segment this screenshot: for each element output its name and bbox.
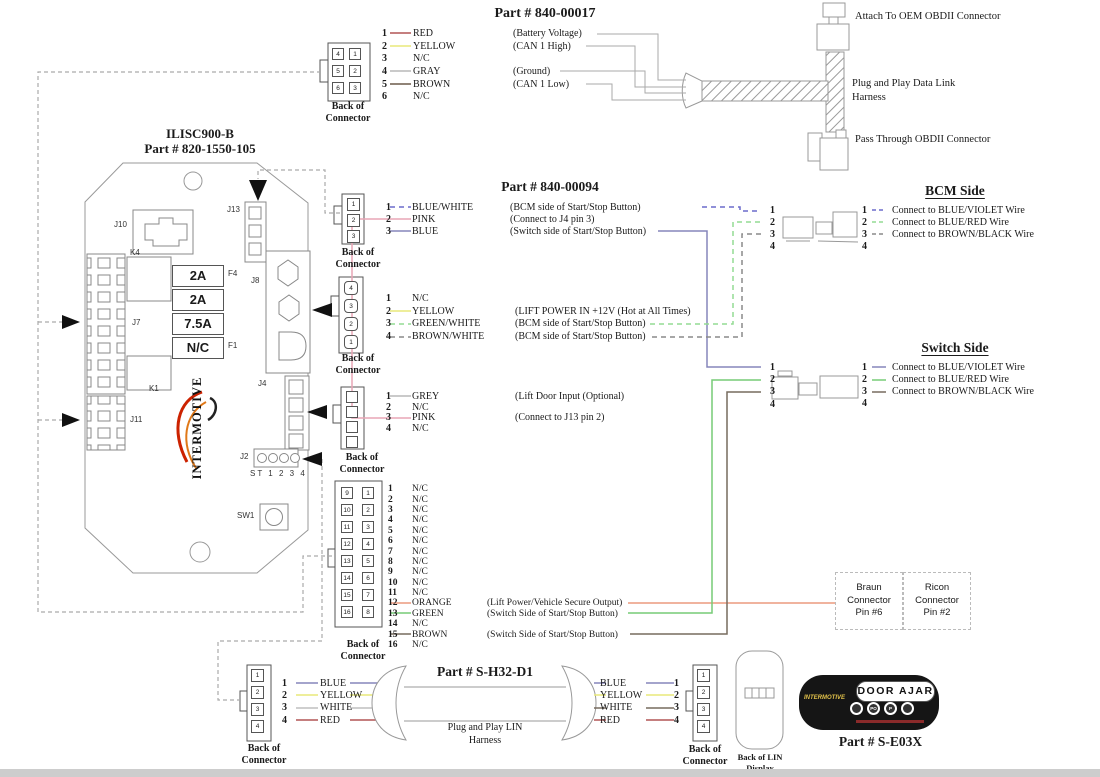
pin-label: Connect to BLUE/VIOLET Wire	[892, 362, 1025, 373]
lin-right-connector-cells: 1234	[697, 669, 710, 733]
pin-number: 3	[862, 229, 870, 240]
lin-left-pinlist: 1 BLUE 2 YELLOW 3 WHITE 4 RED	[282, 677, 362, 726]
pin-label: Connect to BLUE/VIOLET Wire	[892, 205, 1025, 216]
pin-number: 1	[674, 678, 686, 689]
ref-j11: J11	[130, 415, 142, 424]
pin-color: YELLOW	[412, 306, 515, 317]
pin-number: 4	[763, 241, 775, 253]
pin-row: 11 N/C	[388, 588, 622, 598]
pin-number: 1	[386, 391, 396, 402]
pin-color: RED	[413, 28, 513, 39]
pin-row: 2 N/C	[388, 494, 622, 504]
pin-number: 6	[382, 91, 392, 102]
pin-number: 5	[382, 79, 392, 90]
connector-840-00017-cells: 415263	[332, 48, 361, 94]
pin-number: 13	[388, 609, 402, 619]
pin-color: GREEN/WHITE	[412, 318, 515, 329]
ref-f1: F1	[228, 341, 237, 350]
pin-row: 2 YELLOW (LIFT POWER IN +12V (Hot at All…	[386, 305, 691, 318]
pin-cell	[346, 436, 358, 448]
module-title-line2: Part # 820-1550-105	[90, 141, 310, 156]
lin-harness-title: Part # S-H32-D1	[405, 664, 565, 680]
pin-color: BROWN	[413, 79, 513, 90]
pin-cell: 6	[332, 82, 344, 94]
pin-color: N/C	[412, 526, 487, 536]
arrow-j13	[249, 180, 267, 201]
pin-number: 1	[386, 293, 396, 304]
pin-row: 1 GREY (Lift Door Input (Optional)	[386, 391, 624, 402]
pin-number: 16	[388, 640, 402, 650]
pin-color: WHITE	[320, 702, 352, 713]
pin-cell: 3	[697, 703, 710, 716]
pin-color: N/C	[412, 423, 515, 434]
pin-cell: 4	[344, 281, 358, 295]
pin-number: 2	[674, 690, 686, 701]
pin-color: YELLOW	[320, 690, 362, 701]
pin-number: 4	[763, 398, 775, 410]
part-se03x-title: Part # S-E03X	[818, 734, 943, 750]
pin-number: 3	[674, 702, 686, 713]
pin-number: 7	[388, 547, 402, 557]
pin-color: YELLOW	[600, 690, 644, 701]
braun-connector-box: Braun Connector Pin #6	[835, 572, 903, 630]
back-of-connector-label: Back of Connector	[332, 452, 392, 476]
pinlist-840-00094: 1 BLUE/WHITE (BCM side of Start/Stop But…	[386, 201, 646, 237]
pin-cell: 11	[341, 521, 353, 533]
pin-function: (BCM side of Start/Stop Button)	[510, 202, 641, 213]
fuse-label: 7.5A	[172, 313, 224, 335]
arrow-j4	[307, 405, 327, 419]
pin-function: (CAN 1 High)	[513, 41, 571, 52]
pin-cell: 1	[347, 198, 360, 211]
pin-row: 1 BLUE/WHITE (BCM side of Start/Stop But…	[386, 201, 646, 213]
pin-number: 4	[386, 423, 396, 434]
module-j10-jack	[133, 210, 193, 254]
pin-cell: 7	[362, 589, 374, 601]
pin-color: N/C	[412, 515, 487, 525]
pin-row: 3 PINK (Connect to J13 pin 2)	[386, 412, 624, 423]
pin-cell: 2	[344, 317, 358, 331]
pin-row: 4	[862, 241, 1034, 253]
pin-cell: 16	[341, 606, 353, 618]
module-sw1-button	[260, 504, 288, 530]
back-of-connector-label: Back of Connector	[333, 639, 393, 663]
pin-row: 2 Connect to BLUE/RED Wire	[862, 216, 1034, 228]
pin-color: N/C	[412, 505, 487, 515]
pin-row: 9 N/C	[388, 567, 622, 577]
pin-number: 1	[763, 361, 775, 373]
connector-j8-cells: 4321	[344, 281, 358, 349]
module-j13-connector	[245, 202, 266, 262]
pin-number: 1	[862, 205, 870, 216]
pin-cell: 6	[362, 572, 374, 584]
pin-color: N/C	[412, 495, 487, 505]
ref-j8: J8	[251, 276, 259, 285]
pin-row: 2 YELLOW	[282, 689, 362, 701]
connector-840-00094-cells: 123	[347, 198, 360, 243]
ref-k4: K4	[130, 248, 140, 257]
lin-display-back	[736, 651, 783, 749]
module-title: ILISC900-B Part # 820-1550-105	[90, 126, 310, 156]
pin-row: 2 YELLOW (CAN 1 High)	[382, 40, 582, 53]
pin-color: N/C	[413, 91, 513, 102]
arrow-j8	[312, 303, 332, 317]
pin-color: RED	[600, 715, 644, 726]
pin-number: 4	[388, 515, 402, 525]
ref-st-pins: ST 1 2 3 4	[250, 469, 307, 478]
pin-cell: 2	[349, 65, 361, 77]
pin-row: 3 BLUE (Switch side of Start/Stop Button…	[386, 225, 646, 237]
pin-row: 13 GREEN (Switch Side of Start/Stop Butt…	[388, 609, 622, 619]
pin-label: Connect to BLUE/RED Wire	[892, 374, 1009, 385]
ref-k1: K1	[149, 384, 159, 393]
bottom-border-strip	[0, 769, 1100, 777]
pin-color: GREEN	[412, 609, 487, 619]
pin-cell: 1	[344, 335, 358, 349]
pin-row: 3 Connect to BROWN/BLACK Wire	[862, 385, 1034, 397]
pin-number: 1	[763, 204, 775, 216]
pin-number: 9	[388, 567, 402, 577]
pin-function: (Switch side of Start/Stop Button)	[510, 226, 646, 237]
pin-label: Connect to BROWN/BLACK Wire	[892, 386, 1034, 397]
pin-cell: 14	[341, 572, 353, 584]
pin-number: 3	[282, 702, 292, 713]
pin-number: 2	[382, 41, 392, 52]
pin-color: BLUE	[600, 678, 644, 689]
wiring-diagram: Part # 840-00017 415263 Back of Connecto…	[0, 0, 1100, 777]
pin-number: 3	[386, 318, 396, 329]
pin-color: WHITE	[600, 702, 644, 713]
pin-color: RED	[320, 715, 340, 726]
pin-number: 3	[763, 228, 775, 240]
arrow-j11	[62, 413, 80, 427]
intermotive-logo-small: INTERMOTIVE	[804, 695, 845, 701]
pin-number: 2	[386, 306, 396, 317]
pin-row: 4 GRAY (Ground)	[382, 65, 582, 78]
display-button[interactable]: PO	[867, 702, 880, 715]
pin-row: 2 N/C	[386, 402, 624, 413]
pin-color: N/C	[412, 619, 487, 629]
pin-row: 1 BLUE	[282, 677, 362, 689]
pin-color: PINK	[412, 214, 510, 225]
switch-connector-sketch	[772, 371, 858, 399]
pin-cell: 1	[697, 669, 710, 682]
pin-row: 4	[862, 398, 1034, 410]
pin-number: 2	[763, 216, 775, 228]
pin-row: RED 4	[600, 714, 686, 726]
pin-row: 14 N/C	[388, 619, 622, 629]
bcm-left-pin-numbers: 1234	[763, 204, 775, 253]
pin-color: YELLOW	[413, 41, 513, 52]
pin-color: BROWN	[412, 630, 487, 640]
pin-color: N/C	[412, 402, 515, 413]
switch-pin-labels: 1 Connect to BLUE/VIOLET Wire 2 Connect …	[862, 361, 1034, 410]
pin-number: 2	[862, 374, 870, 385]
pin-number: 10	[388, 578, 402, 588]
lin-right-pinlist: BLUE 1 YELLOW 2 WHITE 3 RED 4	[600, 677, 686, 726]
lin-left-connector-cells: 1234	[251, 669, 264, 733]
pin-function: (LIFT POWER IN +12V (Hot at All Times)	[515, 306, 691, 317]
pin-row: 3 Connect to BROWN/BLACK Wire	[862, 228, 1034, 240]
pin-row: YELLOW 2	[600, 689, 686, 701]
door-ajar-readout: DOOR AJAR	[856, 681, 935, 702]
wire-j2-to-lin	[218, 459, 322, 700]
pin-row: 1 RED (Battery Voltage)	[382, 27, 582, 40]
pin-cell: 3	[251, 703, 264, 716]
wire-j13-link	[258, 170, 340, 213]
pin-cell: 12	[341, 538, 353, 550]
pin-number: 4	[862, 241, 870, 252]
pin-function: (CAN 1 Low)	[513, 79, 569, 90]
pin-number: 1	[386, 202, 396, 213]
pin-row: 4 BROWN/WHITE (BCM side of Start/Stop Bu…	[386, 330, 691, 343]
pin-cell: 10	[341, 504, 353, 516]
pin-function: (Lift Power/Vehicle Secure Output)	[487, 598, 622, 608]
bcm-connector-sketch	[783, 212, 858, 242]
ref-j10: J10	[114, 220, 127, 229]
pin-row: 5 BROWN (CAN 1 Low)	[382, 78, 582, 91]
pin-number: 1	[382, 28, 392, 39]
pin-color: BLUE	[412, 226, 510, 237]
pin-cell: 4	[332, 48, 344, 60]
module-title-line1: ILISC900-B	[90, 126, 310, 141]
pin-function: (Ground)	[513, 66, 550, 77]
fuse-label: 2A	[172, 265, 224, 287]
pin-number: 4	[382, 66, 392, 77]
part-840-00017-title: Part # 840-00017	[455, 6, 635, 22]
back-of-connector-label: Back of Connector	[328, 353, 388, 377]
pin-number: 3	[388, 505, 402, 515]
pin-cell: 3	[344, 299, 358, 313]
pin-cell	[346, 421, 358, 433]
display-tagline-strip	[856, 720, 924, 723]
pin-function: (Lift Door Input (Optional)	[515, 391, 624, 402]
pin-cell: 13	[341, 555, 353, 567]
pin-cell: 1	[349, 48, 361, 60]
pin-function: (Switch Side of Start/Stop Button)	[487, 609, 618, 619]
pin-number: 1	[862, 362, 870, 373]
pin-cell: 2	[251, 686, 264, 699]
pin-color: GRAY	[413, 66, 513, 77]
module-j4-connector	[285, 376, 309, 450]
pin-label: Connect to BROWN/BLACK Wire	[892, 229, 1034, 240]
pin-number: 12	[388, 598, 402, 608]
ref-j2: J2	[240, 452, 248, 461]
pin-row: 2 Connect to BLUE/RED Wire	[862, 373, 1034, 385]
lin-display-front: DOOR AJAR INTERMOTIVE POP	[799, 675, 939, 730]
pin-color: N/C	[412, 293, 515, 304]
pin-row: 4 RED	[282, 714, 362, 726]
ref-f4: F4	[228, 269, 237, 278]
pin-row: 4 N/C	[386, 423, 624, 434]
pin-row: 1 Connect to BLUE/VIOLET Wire	[862, 204, 1034, 216]
pin-number: 3	[862, 386, 870, 397]
pin-row: 8 N/C	[388, 557, 622, 567]
bcm-pin-labels: 1 Connect to BLUE/VIOLET Wire 2 Connect …	[862, 204, 1034, 253]
obd-attach-label: Attach To OEM OBDII Connector	[855, 10, 1005, 24]
pin-row: WHITE 3	[600, 702, 686, 714]
display-button[interactable]	[901, 702, 914, 715]
pin-color: PINK	[412, 412, 515, 423]
pin-number: 14	[388, 619, 402, 629]
fuse-label: N/C	[172, 337, 224, 359]
pin-cell: 2	[347, 214, 360, 227]
pin-row: 4 N/C	[388, 515, 622, 525]
pin-color: N/C	[412, 484, 487, 494]
pin-color: N/C	[412, 557, 487, 567]
pin-color: N/C	[413, 53, 513, 64]
pin-row: 12 ORANGE (Lift Power/Vehicle Secure Out…	[388, 598, 622, 608]
pin-cell	[346, 406, 358, 418]
pin-cell: 3	[362, 521, 374, 533]
display-buttons: POP	[850, 702, 914, 715]
pin-row: 7 N/C	[388, 546, 622, 556]
pin-number: 3	[382, 53, 392, 64]
intermotive-logo-text: INTERMOTIVE	[190, 373, 206, 483]
pin-row: 1 Connect to BLUE/VIOLET Wire	[862, 361, 1034, 373]
ref-j7: J7	[132, 318, 140, 327]
part-840-00094-title: Part # 840-00094	[465, 179, 635, 195]
pin-row: BLUE 1	[600, 677, 686, 689]
pin-color: N/C	[412, 578, 487, 588]
pin-cell: 4	[251, 720, 264, 733]
pin-number: 4	[674, 715, 686, 726]
pin-cell: 3	[349, 82, 361, 94]
module-j7-grid	[87, 254, 125, 394]
pin-function: (Switch Side of Start/Stop Button)	[487, 630, 618, 640]
pin-function: (Connect to J4 pin 3)	[510, 214, 594, 225]
pin-row: 3 N/C	[382, 52, 582, 65]
back-of-connector-label: Back of Connector	[234, 743, 294, 767]
pin-row: 1 N/C	[388, 484, 622, 494]
obd-harness-label: Plug and Play Data Link Harness	[852, 77, 964, 104]
ref-j13: J13	[227, 205, 240, 214]
pin-number: 4	[386, 331, 396, 342]
pin-color: BROWN/WHITE	[412, 331, 515, 342]
pin-row: 16 N/C	[388, 640, 622, 650]
pin-cell: 1	[362, 487, 374, 499]
module-j11-grid	[87, 396, 125, 450]
arrow-j7	[62, 315, 80, 329]
pin-cell: 15	[341, 589, 353, 601]
ricon-connector-box: Ricon Connector Pin #2	[903, 572, 971, 630]
pin-cell: 9	[341, 487, 353, 499]
pin-cell: 2	[362, 504, 374, 516]
pin-label: Connect to BLUE/RED Wire	[892, 217, 1009, 228]
pinlist-840-00017: 1 RED (Battery Voltage) 2 YELLOW (CAN 1 …	[382, 27, 582, 103]
pin-number: 11	[388, 588, 402, 598]
pin-function: (BCM side of Start/Stop Button)	[515, 318, 646, 329]
pin-row: 6 N/C	[388, 536, 622, 546]
pinlist-16pin: 1 N/C 2 N/C 3 N/C 4 N/C 5 N/C 6 N/C 7 N/…	[388, 484, 622, 650]
connector-j4-cells	[346, 391, 358, 448]
pin-number: 2	[388, 495, 402, 505]
pin-row: 5 N/C	[388, 526, 622, 536]
pin-row: 6 N/C	[382, 90, 582, 103]
pin-cell: 5	[332, 65, 344, 77]
pin-color: N/C	[412, 640, 487, 650]
display-button[interactable]: P	[884, 702, 897, 715]
pin-number: 2	[282, 690, 292, 701]
pin-number: 15	[388, 630, 402, 640]
pin-row: 3 GREEN/WHITE (BCM side of Start/Stop Bu…	[386, 318, 691, 331]
pin-row: 3 N/C	[388, 505, 622, 515]
pin-cell: 1	[251, 669, 264, 682]
pin-cell: 2	[697, 686, 710, 699]
fuse-label: 2A	[172, 289, 224, 311]
pin-number: 1	[388, 484, 402, 494]
lin-harness-label: Plug and Play LIN Harness	[432, 722, 538, 747]
pin-number: 3	[386, 412, 396, 423]
pin-number: 5	[388, 526, 402, 536]
pin-color: N/C	[412, 588, 487, 598]
pin-color: N/C	[412, 567, 487, 577]
ref-j4: J4	[258, 379, 266, 388]
pin-function: (Connect to J13 pin 2)	[515, 412, 604, 423]
pin-function: (BCM side of Start/Stop Button)	[515, 331, 646, 342]
pin-number: 3	[763, 386, 775, 398]
pin-number: 2	[386, 214, 396, 225]
pin-row: 15 BROWN (Switch Side of Start/Stop Butt…	[388, 629, 622, 639]
pin-number: 1	[282, 678, 292, 689]
pin-number: 2	[386, 402, 396, 413]
pin-cell: 4	[362, 538, 374, 550]
pinlist-j8: 1 N/C 2 YELLOW (LIFT POWER IN +12V (Hot …	[386, 292, 691, 343]
pin-number: 4	[282, 715, 292, 726]
pin-color: N/C	[412, 536, 487, 546]
pin-row: 3 WHITE	[282, 702, 362, 714]
bcm-side-title: BCM Side	[870, 183, 1040, 199]
pin-color: BLUE/WHITE	[412, 202, 510, 213]
arrow-j2	[302, 452, 322, 466]
display-button[interactable]	[850, 702, 863, 715]
switch-left-pin-numbers: 1234	[763, 361, 775, 411]
pin-number: 2	[763, 373, 775, 385]
pin-color: GREY	[412, 391, 515, 402]
pin-number: 8	[388, 557, 402, 567]
pin-cell	[346, 391, 358, 403]
obdii-shapes	[682, 3, 849, 170]
pin-color: N/C	[412, 547, 487, 557]
pin-number: 4	[862, 398, 870, 409]
ref-sw1: SW1	[237, 511, 254, 520]
back-of-connector-label: Back of Connector	[328, 247, 388, 271]
pin-cell: 8	[362, 606, 374, 618]
module-j2-connector	[254, 449, 300, 467]
pin-row: 2 PINK (Connect to J4 pin 3)	[386, 213, 646, 225]
pin-color: ORANGE	[412, 598, 487, 608]
pin-number: 6	[388, 536, 402, 546]
connector-16pin-cells: 91102113124135146157168	[341, 487, 374, 618]
pin-function: (Battery Voltage)	[513, 28, 582, 39]
pin-cell: 3	[347, 230, 360, 243]
pinlist-j4: 1 GREY (Lift Door Input (Optional) 2 N/C…	[386, 391, 624, 434]
pin-row: 10 N/C	[388, 578, 622, 588]
fuse-column: 2A2A7.5AN/C	[172, 265, 224, 359]
module-j8-connector	[266, 251, 310, 373]
back-of-connector-label: Back of Connector	[318, 101, 378, 125]
switch-side-title: Switch Side	[870, 340, 1040, 356]
pin-number: 2	[862, 217, 870, 228]
pin-cell: 4	[697, 720, 710, 733]
pin-row: 1 N/C	[386, 292, 691, 305]
pin-number: 3	[386, 226, 396, 237]
obd-pass-label: Pass Through OBDII Connector	[855, 133, 995, 147]
pin-cell: 5	[362, 555, 374, 567]
pin-color: BLUE	[320, 678, 346, 689]
